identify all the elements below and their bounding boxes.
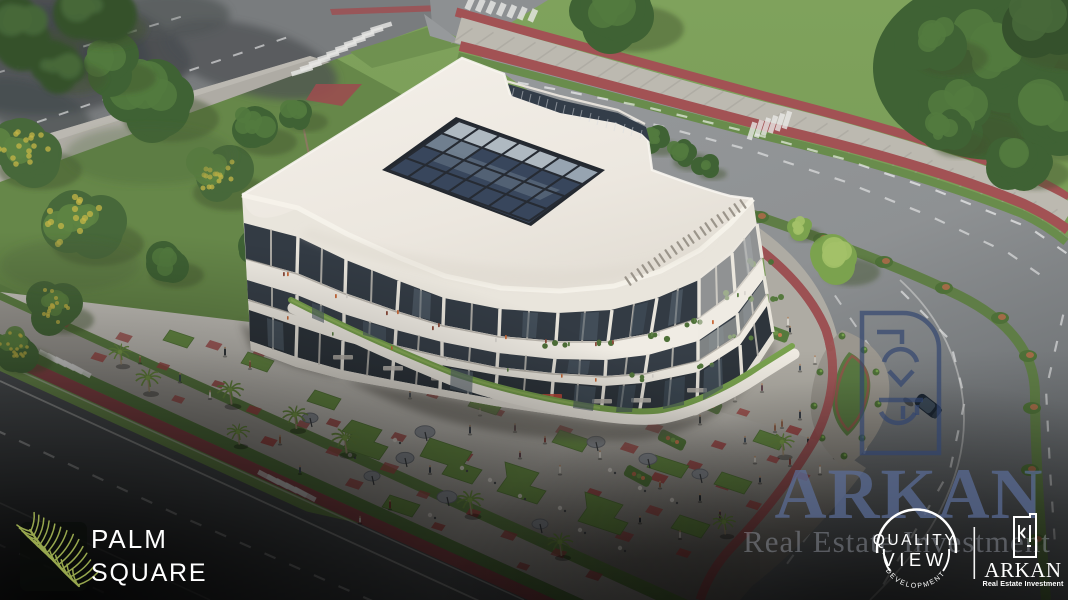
svg-text:Real Estate Investment: Real Estate Investment	[983, 579, 1064, 588]
svg-text:ARKAN: ARKAN	[775, 454, 1044, 534]
svg-text:PALM: PALM	[91, 524, 168, 554]
svg-text:QUALITY: QUALITY	[873, 532, 958, 549]
svg-text:SQUARE: SQUARE	[91, 559, 207, 587]
svg-text:VIEW: VIEW	[882, 549, 947, 570]
